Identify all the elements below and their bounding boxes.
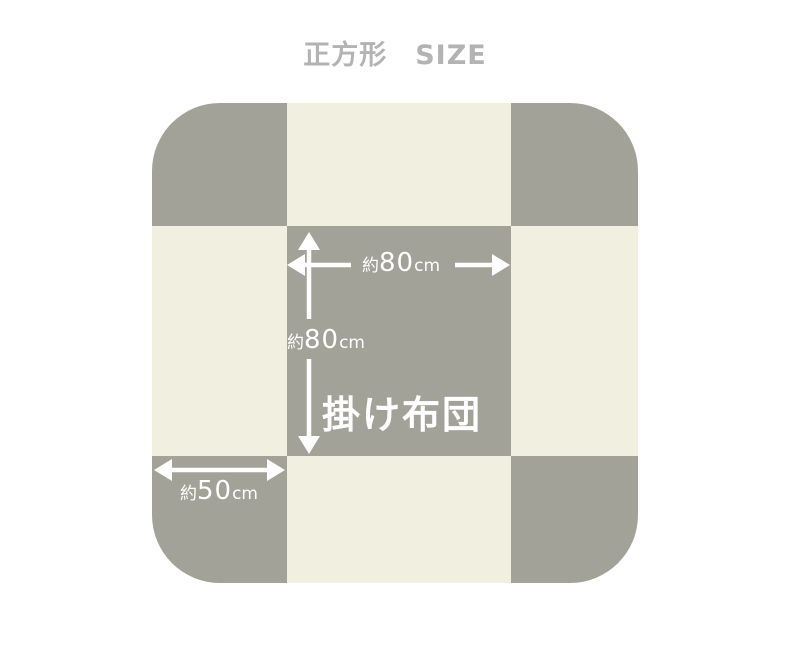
futon-edge-bottom	[287, 456, 511, 583]
size-diagram-page: 正方形 SIZE 約80cm	[0, 0, 800, 650]
futon-corner-top-left	[152, 103, 287, 226]
futon-edge-left	[152, 226, 287, 456]
futon-diagram	[152, 103, 638, 583]
futon-edge-top	[287, 103, 511, 226]
futon-corner-bottom-right	[511, 456, 638, 583]
futon-center-panel	[287, 226, 511, 456]
futon-edge-right	[511, 226, 638, 456]
futon-corner-bottom-left	[152, 456, 287, 583]
futon-corner-top-right	[511, 103, 638, 226]
page-title: 正方形 SIZE	[152, 33, 638, 72]
